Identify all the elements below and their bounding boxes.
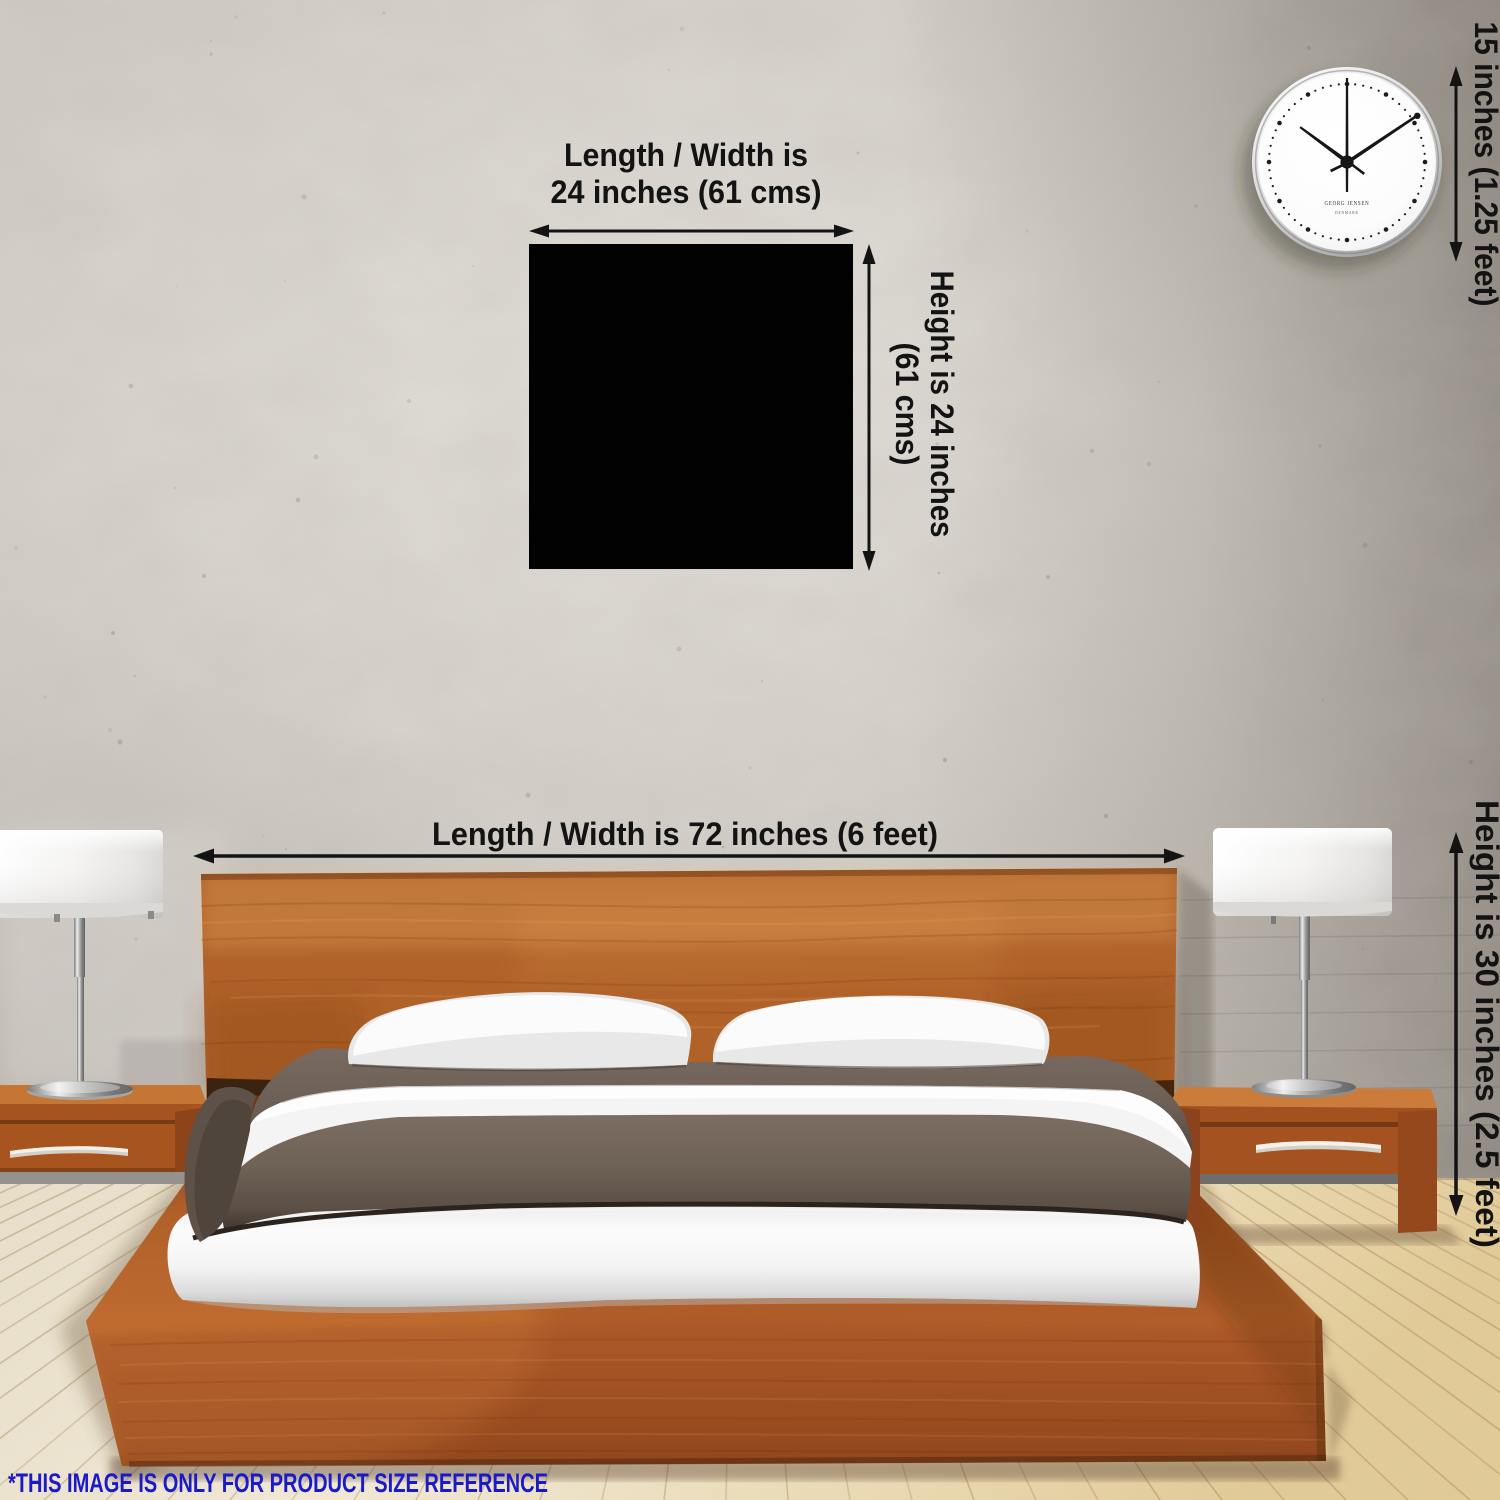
svg-text:15 inches (1.25 feet): 15 inches (1.25 feet) [1468, 22, 1500, 307]
svg-text:DENMARK: DENMARK [1335, 211, 1359, 215]
svg-text:GEORG JENSEN: GEORG JENSEN [1325, 201, 1370, 207]
svg-text:Length / Width is 72 inches (6: Length / Width is 72 inches (6 feet) [432, 816, 938, 852]
svg-text:24 inches (61 cms): 24 inches (61 cms) [551, 174, 822, 210]
svg-text:Height is 30 inches (2.5 feet): Height is 30 inches (2.5 feet) [1469, 800, 1500, 1248]
svg-text:Length / Width is: Length / Width is [564, 137, 808, 173]
svg-text:*THIS IMAGE IS ONLY FOR PRODUC: *THIS IMAGE IS ONLY FOR PRODUCT SIZE REF… [8, 1468, 548, 1498]
svg-text:Height is 24 inches: Height is 24 inches [924, 271, 960, 538]
svg-text:(61 cms): (61 cms) [889, 343, 925, 466]
